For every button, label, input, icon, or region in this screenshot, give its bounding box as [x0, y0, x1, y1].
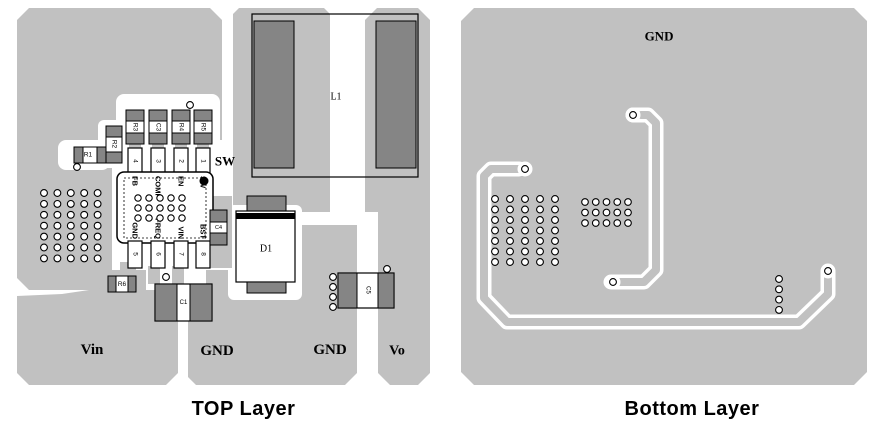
via: [507, 238, 514, 245]
net-label-gnd: GND: [645, 29, 674, 44]
via: [54, 201, 61, 208]
r1-pad: [97, 147, 106, 163]
label: 8: [200, 252, 207, 256]
ic-pin-vin: VIN: [177, 226, 186, 239]
via: [41, 211, 48, 218]
via: [507, 196, 514, 203]
via: [825, 268, 832, 275]
via: [67, 222, 74, 229]
bottom-layer-board: GND: [443, 0, 887, 397]
bottom-layer-pcb: GND: [461, 8, 867, 385]
via: [81, 244, 88, 251]
via: [67, 190, 74, 197]
via: [81, 222, 88, 229]
via: [537, 196, 544, 203]
via: [168, 205, 174, 211]
via: [168, 195, 174, 201]
via: [522, 259, 529, 266]
via: [552, 206, 559, 213]
via: [67, 233, 74, 240]
via: [592, 199, 599, 206]
net-label-sw: SW: [215, 154, 235, 169]
via: [168, 215, 174, 221]
net-label-gnd-2: GND: [313, 342, 347, 358]
c4-pad: [210, 233, 227, 245]
d1-pad-top: [247, 196, 286, 211]
r3-pad: [126, 110, 144, 121]
l1-pad-left: [254, 21, 294, 168]
label: 3: [155, 159, 162, 163]
caption-bottom-layer: Bottom Layer: [497, 398, 887, 421]
via: [537, 238, 544, 245]
via: [135, 195, 141, 201]
via: [592, 220, 599, 227]
via: [552, 259, 559, 266]
via: [146, 195, 152, 201]
r3-label: R3: [132, 123, 139, 132]
via: [135, 205, 141, 211]
via: [157, 215, 163, 221]
via: [179, 205, 185, 211]
top-layer-pcb: L1R3C3R4R5R2R14321FBCOMPENSWGNDFREQVINBS…: [17, 8, 430, 385]
via: [163, 274, 170, 281]
caption-top-layer: TOP Layer: [0, 398, 487, 421]
via: [54, 255, 61, 262]
d1-label: D1: [260, 244, 272, 255]
ic-pin-bst: BST: [199, 224, 208, 239]
r5-pad: [194, 133, 212, 144]
via: [41, 222, 48, 229]
r1-label: R1: [84, 152, 93, 159]
via: [552, 227, 559, 234]
via: [776, 296, 783, 303]
c1-pad: [190, 284, 212, 321]
via: [603, 220, 610, 227]
label: 7: [178, 252, 185, 256]
c1-pad: [155, 284, 177, 321]
via: [492, 196, 499, 203]
via: [522, 238, 529, 245]
ic-pin-sw: SW: [199, 176, 208, 189]
l1-pad-right: [376, 21, 416, 168]
via: [537, 217, 544, 224]
via: [41, 233, 48, 240]
via: [54, 222, 61, 229]
label: 2: [178, 159, 185, 163]
via: [537, 227, 544, 234]
via: [552, 238, 559, 245]
via: [507, 206, 514, 213]
c4-pad: [210, 210, 227, 222]
via: [146, 215, 152, 221]
via: [603, 199, 610, 206]
via: [384, 266, 391, 273]
via: [54, 233, 61, 240]
via: [330, 304, 337, 311]
via: [592, 209, 599, 216]
r6-pad: [108, 276, 116, 292]
via: [507, 227, 514, 234]
via: [625, 199, 632, 206]
via: [603, 209, 610, 216]
r2-pad: [106, 126, 122, 137]
via: [81, 233, 88, 240]
c5-pad: [378, 273, 394, 308]
via: [582, 220, 589, 227]
c5-pad: [338, 273, 357, 308]
net-label-gnd-1: GND: [200, 343, 234, 359]
via: [522, 248, 529, 255]
via: [330, 294, 337, 301]
via: [81, 201, 88, 208]
via: [492, 259, 499, 266]
net-label-vin: Vin: [81, 342, 104, 358]
via: [81, 190, 88, 197]
via: [135, 215, 141, 221]
ic-pin-en: EN: [177, 176, 186, 186]
via: [522, 227, 529, 234]
via: [67, 244, 74, 251]
via: [776, 307, 783, 314]
c3-label: C3: [155, 123, 162, 132]
r4-pad: [172, 133, 190, 144]
via: [507, 259, 514, 266]
d1-pad-bottom: [247, 282, 286, 293]
label: 5: [132, 252, 139, 256]
label: 1: [200, 159, 207, 163]
label: 6: [155, 252, 162, 256]
via: [552, 248, 559, 255]
via: [582, 209, 589, 216]
net-label-vo: Vo: [389, 344, 405, 359]
c3-pad: [149, 133, 167, 144]
via: [537, 259, 544, 266]
c3-pad: [149, 110, 167, 121]
via: [492, 227, 499, 234]
via: [41, 255, 48, 262]
r1-pad: [74, 147, 83, 163]
via: [625, 209, 632, 216]
r5-label: R5: [200, 123, 207, 132]
via: [179, 215, 185, 221]
via: [614, 199, 621, 206]
r2-label: R2: [111, 140, 118, 149]
via: [54, 211, 61, 218]
top-layer-board: L1R3C3R4R5R2R14321FBCOMPENSWGNDFREQVINBS…: [0, 0, 443, 397]
r6-pad: [128, 276, 136, 292]
via: [187, 102, 194, 109]
clearance-pocket: [302, 212, 378, 225]
via: [179, 195, 185, 201]
via: [67, 201, 74, 208]
via: [67, 211, 74, 218]
via: [146, 205, 152, 211]
via: [630, 112, 637, 119]
via: [522, 206, 529, 213]
pcb-layout-figure: L1R3C3R4R5R2R14321FBCOMPENSWGNDFREQVINBS…: [0, 0, 887, 429]
r4-pad: [172, 110, 190, 121]
via: [614, 220, 621, 227]
via: [522, 217, 529, 224]
r5-pad: [194, 110, 212, 121]
via: [41, 244, 48, 251]
ic-pin-gnd: GND: [131, 222, 140, 239]
via: [157, 205, 163, 211]
via: [492, 206, 499, 213]
ic-pin-fb: FB: [131, 176, 140, 187]
via: [67, 255, 74, 262]
via: [522, 196, 529, 203]
via: [94, 201, 101, 208]
r3-pad: [126, 133, 144, 144]
via: [94, 190, 101, 197]
via: [330, 274, 337, 281]
via: [94, 233, 101, 240]
via: [492, 248, 499, 255]
via: [41, 201, 48, 208]
d1-cathode-band: [236, 213, 295, 219]
via: [94, 244, 101, 251]
via: [94, 222, 101, 229]
copper-tab: [148, 266, 160, 284]
copper-tab: [172, 266, 184, 284]
via: [41, 190, 48, 197]
via: [81, 211, 88, 218]
via: [492, 217, 499, 224]
via: [94, 211, 101, 218]
via: [625, 220, 632, 227]
via: [776, 286, 783, 293]
via: [507, 217, 514, 224]
l1-label: L1: [330, 92, 341, 103]
via: [537, 206, 544, 213]
via: [81, 255, 88, 262]
label: 4: [132, 159, 139, 163]
r4-label: R4: [178, 123, 185, 132]
r6-label: R6: [118, 281, 127, 288]
c1-label: C1: [180, 300, 188, 306]
via: [54, 244, 61, 251]
via: [610, 279, 617, 286]
via: [54, 190, 61, 197]
via: [94, 255, 101, 262]
c4-label: C4: [215, 225, 222, 231]
via: [492, 238, 499, 245]
via: [74, 164, 81, 171]
plane-vin: [17, 282, 178, 385]
via: [614, 209, 621, 216]
via: [330, 284, 337, 291]
r2-pad: [106, 152, 122, 163]
via: [507, 248, 514, 255]
via: [776, 276, 783, 283]
via: [552, 196, 559, 203]
c5-label: C5: [365, 286, 371, 294]
via: [537, 248, 544, 255]
via: [552, 217, 559, 224]
via: [582, 199, 589, 206]
via: [157, 195, 163, 201]
via: [522, 166, 529, 173]
